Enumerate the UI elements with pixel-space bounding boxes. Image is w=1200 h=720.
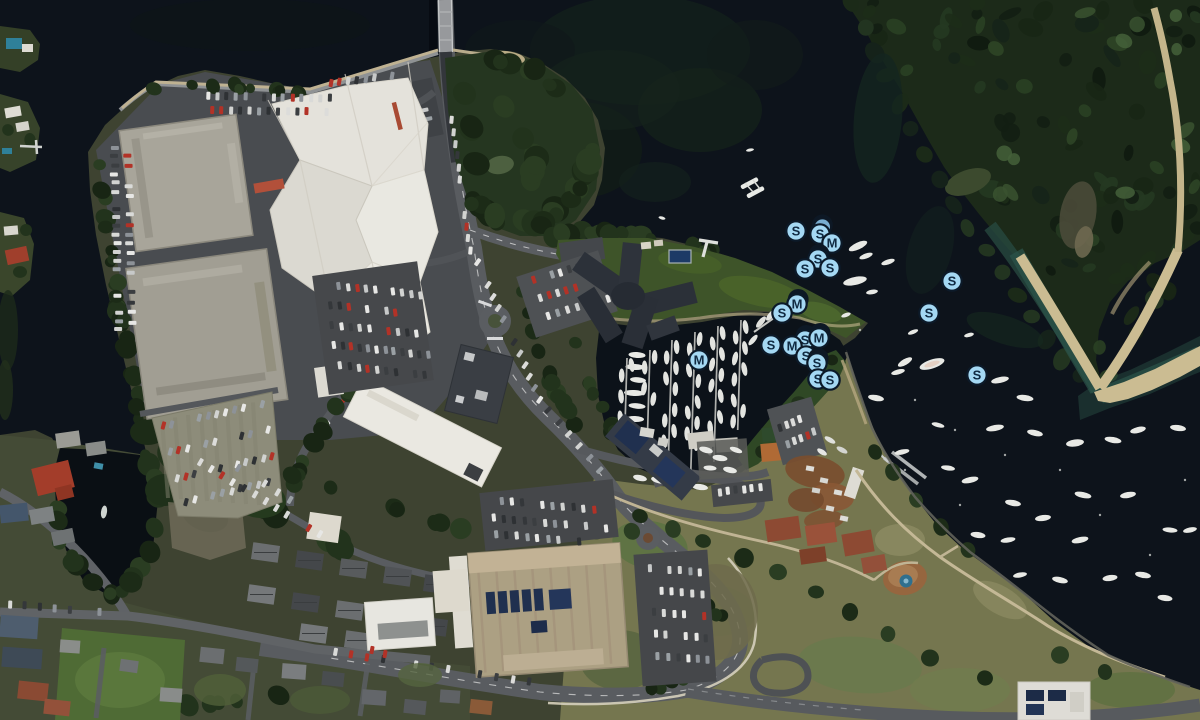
svg-text:S: S — [973, 368, 982, 383]
svg-text:M: M — [792, 297, 803, 312]
svg-text:S: S — [826, 373, 835, 388]
svg-text:S: S — [948, 274, 957, 289]
svg-text:M: M — [814, 331, 825, 346]
svg-text:S: S — [801, 262, 810, 277]
svg-text:S: S — [925, 306, 934, 321]
svg-text:M: M — [827, 236, 838, 251]
svg-text:S: S — [792, 224, 801, 239]
svg-text:M: M — [787, 339, 798, 354]
svg-text:S: S — [778, 306, 787, 321]
svg-text:S: S — [767, 338, 776, 353]
svg-text:M: M — [694, 353, 705, 368]
svg-text:S: S — [826, 261, 835, 276]
